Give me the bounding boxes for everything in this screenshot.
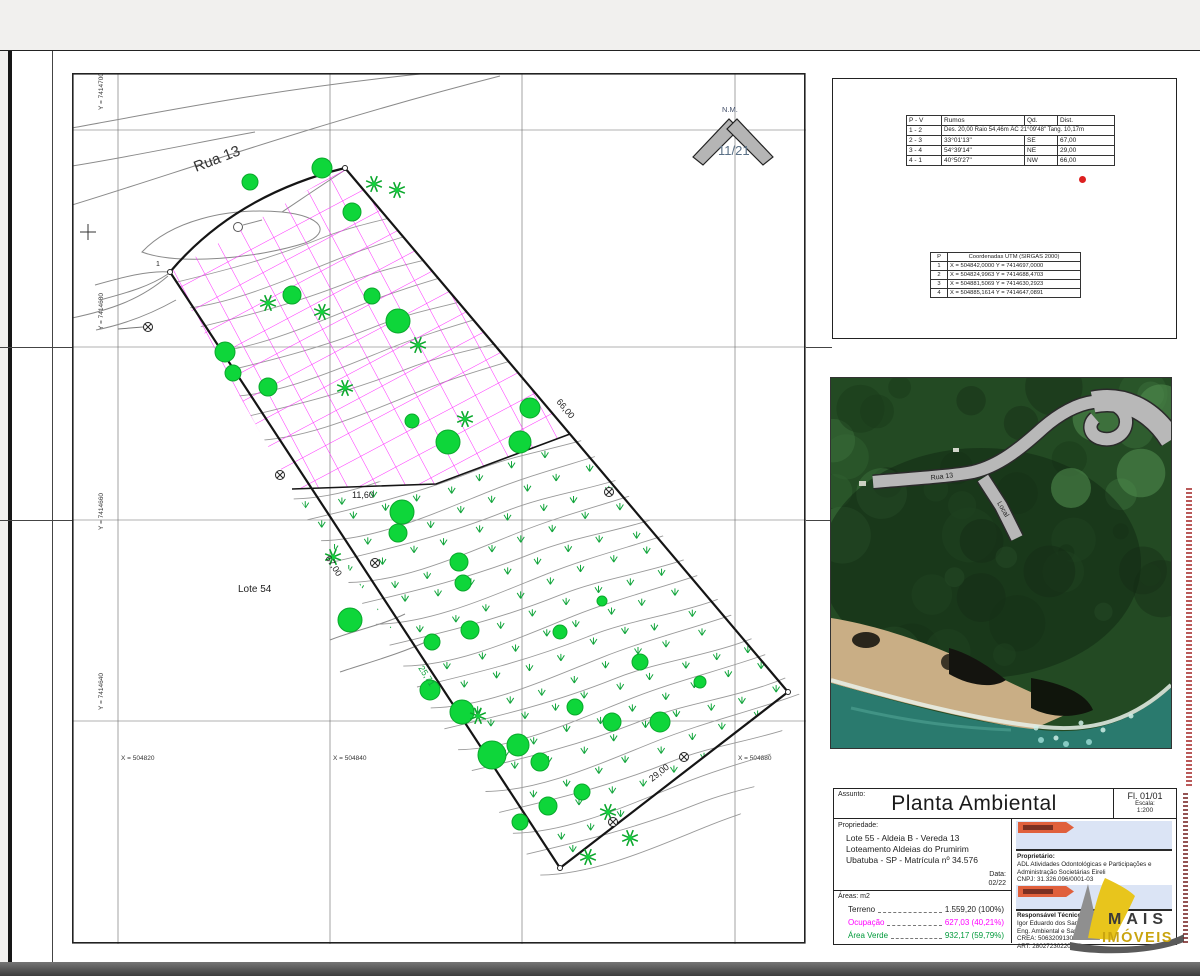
- dim-se: 29,00: [647, 762, 671, 784]
- dim-sw: 67,00: [323, 554, 344, 578]
- coords-table: PCoordenadas UTM (SIRGAS 2000)1X = 50484…: [930, 252, 1081, 298]
- info-panel: P - VRumosQd.Dist.1 - 2Des. 20,00 Raio 5…: [832, 78, 1177, 339]
- fold-mark: [806, 520, 832, 521]
- lote54-label: Lote 54: [238, 584, 272, 595]
- data-value: 02/22: [988, 880, 1006, 887]
- tree-canopy: [520, 398, 540, 418]
- proprietario-label: Proprietário:: [1017, 853, 1055, 861]
- tree-canopy: [650, 712, 670, 732]
- propriedade-line: Loteamento Aldeias do Prumirim: [846, 844, 1010, 855]
- drawing-frame: [73, 74, 805, 943]
- dim-inner: 11,60: [352, 490, 374, 500]
- utm-grid: Y = 7414700Y = 7414680Y = 7414660Y = 741…: [72, 73, 806, 944]
- grid-label-x: X = 504820: [121, 755, 155, 762]
- plotted-sheet-page: Y = 7414700Y = 7414680Y = 7414660Y = 741…: [0, 0, 1200, 976]
- tree-canopy: [259, 378, 277, 396]
- satellite-photo: Rua 13Local: [830, 377, 1172, 749]
- tree-canopy: [386, 309, 410, 333]
- escala-value: 1:200: [1114, 807, 1176, 814]
- dim-ne: 66,00: [554, 397, 576, 421]
- north-arrow: [693, 119, 773, 165]
- tree-canopy: [461, 621, 479, 639]
- tree-canopy: [455, 575, 471, 591]
- tree-canopy: [389, 524, 407, 542]
- data-label: Data:: [989, 871, 1006, 878]
- tree-canopy: [225, 365, 241, 381]
- tree-canopy: [436, 430, 460, 454]
- edge-fineprint: [1186, 488, 1192, 786]
- lot-vertex: [786, 690, 791, 695]
- street-label: Rua 13: [191, 143, 242, 176]
- tree-canopy: [450, 700, 474, 724]
- tree-canopy: [553, 625, 567, 639]
- tree-canopy: [531, 753, 549, 771]
- survey-table: P - VRumosQd.Dist.1 - 2Des. 20,00 Raio 5…: [906, 115, 1115, 166]
- tree-canopy: [338, 608, 362, 632]
- north-label: N.M.: [722, 105, 738, 114]
- tree-canopy: [390, 500, 414, 524]
- tree-canopy: [215, 342, 235, 362]
- tree-canopy: [242, 174, 258, 190]
- red-dot-marker: [1079, 176, 1086, 183]
- tree-canopy: [343, 203, 361, 221]
- areas-label: Áreas: m2: [838, 893, 870, 900]
- area-row: Ocupação627,03 (40,21%): [848, 916, 1004, 929]
- north-value: 11/21: [718, 143, 750, 158]
- tree-canopy: [405, 414, 419, 428]
- propriedade-lines: Lote 55 - Aldeia B - Vereda 13Loteamento…: [846, 833, 1010, 866]
- tree-canopy: [312, 158, 332, 178]
- palm-tree: [389, 182, 405, 198]
- sheet-title: Planta Ambiental: [834, 792, 1114, 816]
- fold-mark: [0, 347, 72, 348]
- folha-number: Fl. 01/01: [1114, 791, 1176, 801]
- tree-canopy: [509, 431, 531, 453]
- sheet-left-border: [8, 51, 12, 962]
- tree-canopy: [694, 676, 706, 688]
- edge-fineprint: [1183, 793, 1188, 945]
- propriedade-line: Lote 55 - Aldeia B - Vereda 13: [846, 833, 1010, 844]
- logo-text-mais: MAIS: [1108, 911, 1168, 928]
- area-row: Área Verde932,17 (59,79%): [848, 929, 1004, 942]
- tree-canopy: [512, 814, 528, 830]
- palm-tree: [622, 830, 638, 846]
- lot-vertex: [343, 166, 348, 171]
- tree-canopy: [597, 596, 607, 606]
- tree-canopy: [632, 654, 648, 670]
- area-row: Terreno1.559,20 (100%): [848, 903, 1004, 916]
- sheet-top-border: [0, 50, 1200, 51]
- tree-canopy: [450, 553, 468, 571]
- propriedade-line: Ubatuba - SP - Matrícula nº 34.576: [846, 855, 1010, 866]
- lot-vertex: [558, 866, 563, 871]
- propriedade-label: Propriedade:: [838, 822, 878, 829]
- tree-canopy: [478, 741, 506, 769]
- tree-canopy: [603, 713, 621, 731]
- grid-label-y: Y = 7414640: [98, 673, 105, 710]
- tree-canopy: [283, 286, 301, 304]
- mais-imoveis-logo: MAIS IMÓVEIS: [1058, 872, 1186, 954]
- lot-vertex: [168, 270, 173, 275]
- site-plan-drawing: Y = 7414700Y = 7414680Y = 7414660Y = 741…: [72, 73, 806, 944]
- fold-mark: [806, 347, 832, 348]
- proprietario-line: ADL Atividades Odontológicas e Participa…: [1017, 861, 1175, 869]
- bottom-bar: [0, 962, 1200, 976]
- sheet-margin-line: [52, 51, 53, 962]
- grid-label-y: Y = 7414660: [98, 493, 105, 530]
- tree-canopy: [424, 634, 440, 650]
- grid-label-x: X = 504840: [333, 755, 367, 762]
- tree-canopy: [574, 784, 590, 800]
- tree-canopy: [567, 699, 583, 715]
- stamp-arrow: [1018, 822, 1074, 833]
- areas-rows: Terreno1.559,20 (100%)Ocupação627,03 (40…: [838, 903, 1008, 942]
- fold-mark: [0, 520, 72, 521]
- vertex-1-label: 1: [156, 261, 160, 268]
- grid-label-y: Y = 7414700: [98, 73, 105, 110]
- palm-tree: [366, 176, 382, 192]
- tree-canopy: [539, 797, 557, 815]
- logo-text-imoveis: IMÓVEIS: [1102, 928, 1173, 946]
- tree-canopy: [507, 734, 529, 756]
- tree-canopy: [364, 288, 380, 304]
